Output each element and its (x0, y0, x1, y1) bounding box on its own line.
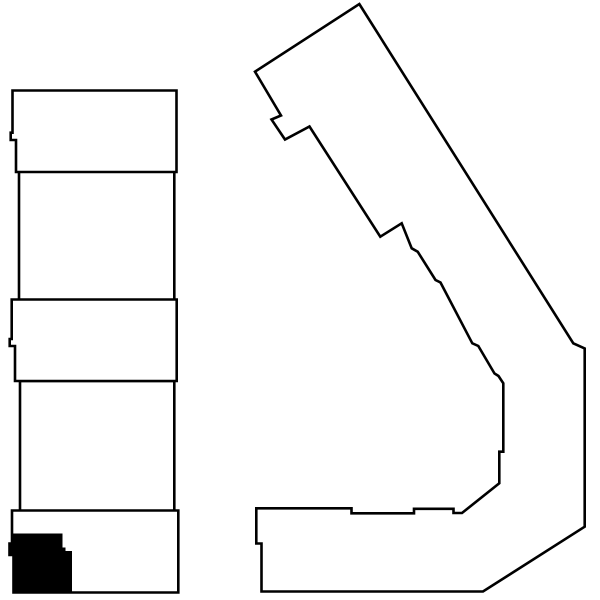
left-building-section-3 (10, 300, 177, 382)
left-building-section-1 (11, 91, 177, 173)
right-building-outline (255, 4, 585, 592)
left-building-section-2 (19, 171, 174, 301)
floorplan-svg (0, 0, 600, 600)
highlighted-unit[interactable] (10, 535, 72, 593)
floorplan-canvas (0, 0, 600, 600)
left-building-section-4 (20, 381, 174, 512)
